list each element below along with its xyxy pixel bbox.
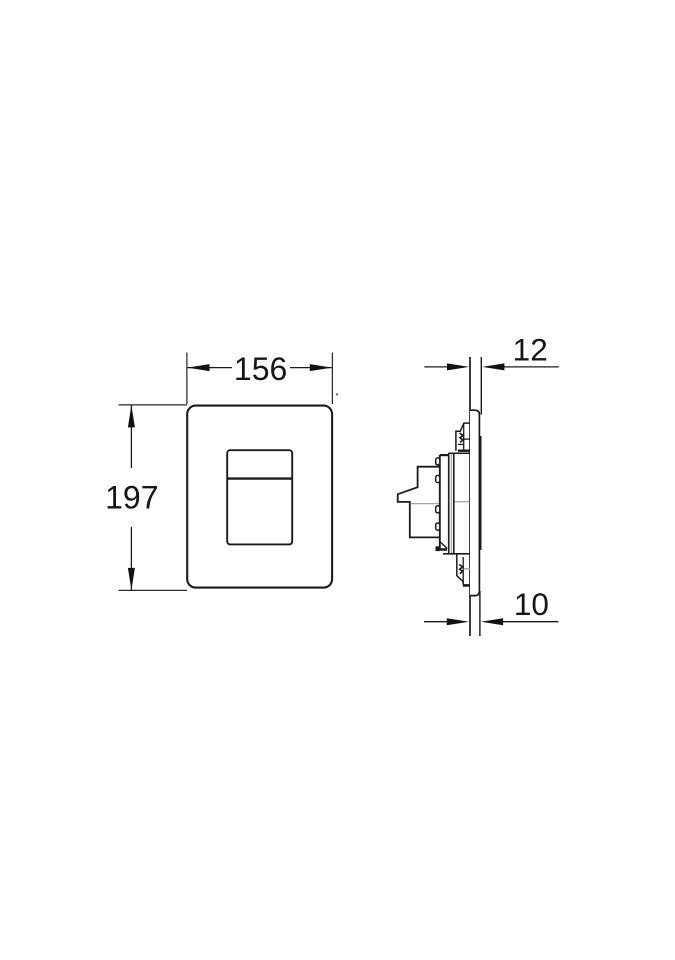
svg-text:12: 12 <box>513 332 548 368</box>
svg-text:10: 10 <box>514 586 549 622</box>
svg-text:197: 197 <box>105 480 158 516</box>
svg-text:156: 156 <box>234 351 287 387</box>
